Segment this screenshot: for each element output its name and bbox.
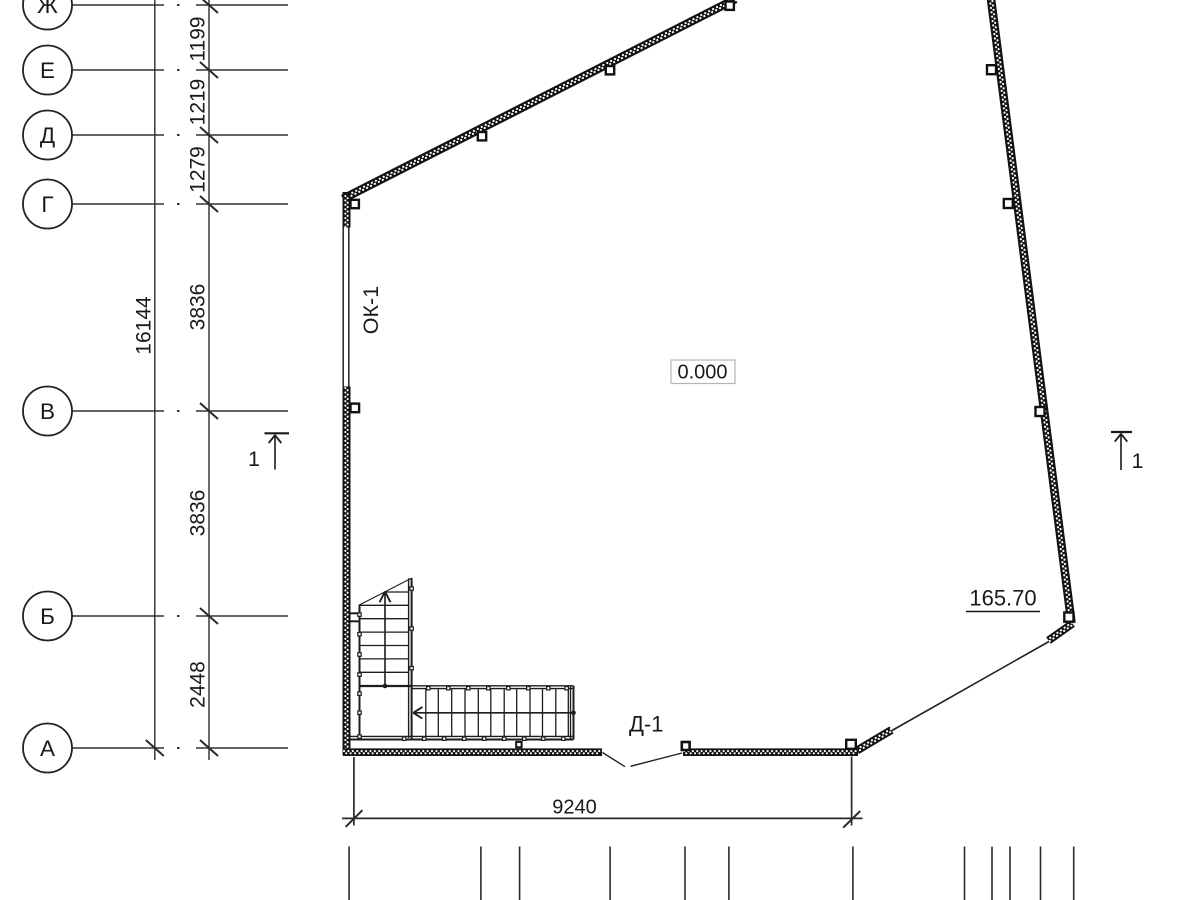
- svg-text:Е: Е: [40, 58, 55, 83]
- svg-text:9240: 9240: [552, 797, 597, 819]
- svg-text:1279: 1279: [187, 146, 210, 193]
- svg-text:1219: 1219: [187, 79, 210, 126]
- svg-text:А: А: [40, 736, 55, 761]
- svg-text:165.70: 165.70: [969, 586, 1036, 611]
- svg-text:3836: 3836: [187, 490, 210, 537]
- svg-text:Д-1: Д-1: [629, 712, 663, 737]
- svg-text:3836: 3836: [187, 284, 210, 331]
- svg-text:Г: Г: [41, 192, 53, 217]
- svg-text:1: 1: [248, 447, 260, 471]
- svg-text:1: 1: [1132, 449, 1144, 473]
- svg-text:1199: 1199: [187, 16, 210, 61]
- svg-text:16144: 16144: [133, 296, 156, 355]
- svg-text:Ж: Ж: [37, 0, 58, 18]
- svg-text:0.000: 0.000: [677, 362, 727, 384]
- svg-text:Б: Б: [40, 604, 55, 629]
- svg-text:В: В: [40, 399, 55, 424]
- svg-text:ОК-1: ОК-1: [359, 286, 383, 334]
- svg-text:Д: Д: [40, 123, 55, 148]
- svg-text:2448: 2448: [187, 661, 210, 708]
